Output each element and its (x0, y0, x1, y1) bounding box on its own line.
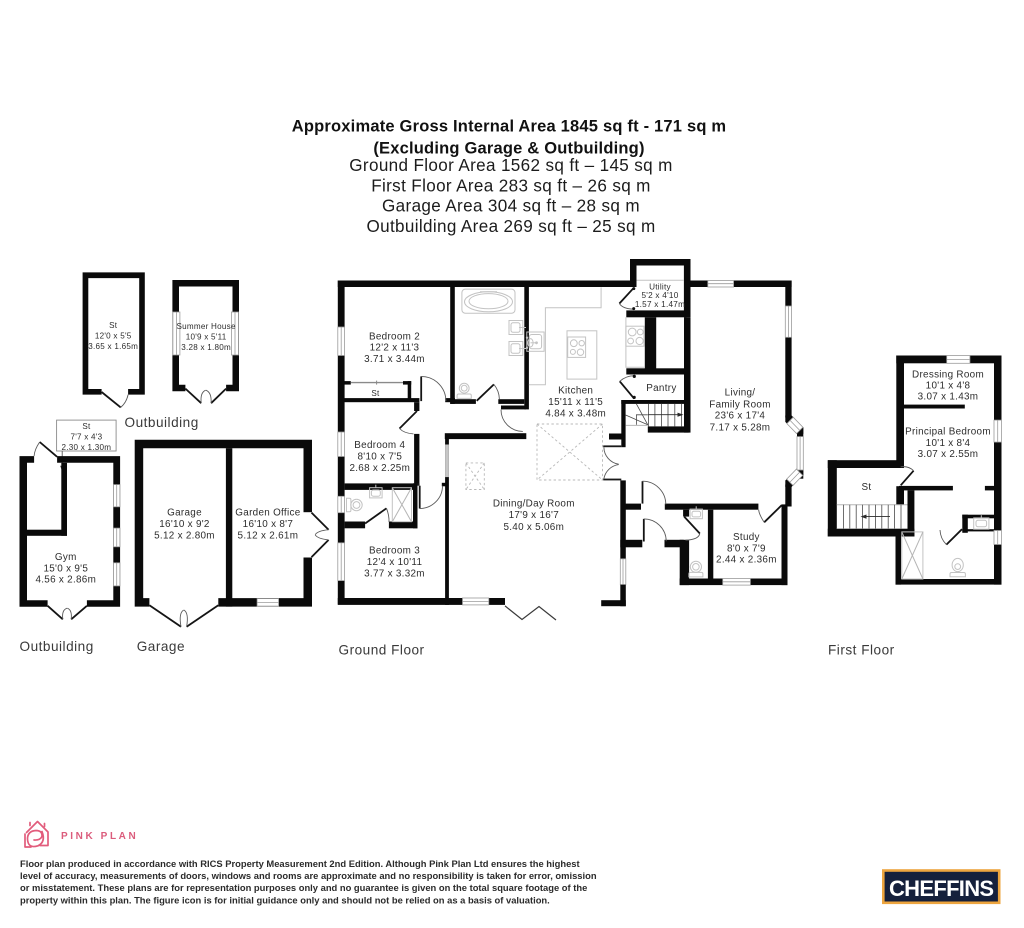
svg-text:8'10 x 7'5: 8'10 x 7'5 (357, 452, 402, 463)
svg-text:16'10 x 8'7: 16'10 x 8'7 (243, 519, 293, 530)
svg-text:10'1 x 8'4: 10'1 x 8'4 (926, 438, 971, 449)
svg-text:Ground Floor: Ground Floor (339, 643, 425, 658)
svg-text:Summer House: Summer House (176, 322, 235, 331)
svg-text:First Floor Area 283 sq ft – 2: First Floor Area 283 sq ft – 26 sq m (371, 177, 651, 196)
svg-text:CHEFFINS: CHEFFINS (889, 876, 993, 901)
svg-text:Bedroom 3: Bedroom 3 (369, 546, 420, 557)
svg-text:Outbuilding Area 269 sq ft – 2: Outbuilding Area 269 sq ft – 25 sq m (366, 217, 655, 236)
svg-text:Study: Study (733, 532, 760, 543)
svg-text:St: St (109, 321, 118, 330)
svg-text:Living/: Living/ (725, 388, 756, 399)
svg-text:5.40 x 5.06m: 5.40 x 5.06m (503, 522, 564, 533)
svg-text:Principal Bedroom: Principal Bedroom (905, 427, 991, 438)
svg-text:Bedroom 4: Bedroom 4 (354, 440, 405, 451)
svg-text:property within this plan. The: property within this plan. The figure ic… (20, 894, 550, 905)
svg-text:4.84 x 3.48m: 4.84 x 3.48m (545, 408, 606, 419)
svg-text:PINK PLAN: PINK PLAN (61, 831, 138, 842)
svg-text:Ground Floor Area 1562 sq ft –: Ground Floor Area 1562 sq ft – 145 sq m (349, 156, 672, 175)
svg-text:3.77 x 3.32m: 3.77 x 3.32m (364, 568, 425, 579)
svg-text:3.65 x 1.65m: 3.65 x 1.65m (88, 342, 138, 351)
svg-text:23'6 x 17'4: 23'6 x 17'4 (715, 411, 766, 422)
svg-text:Garden Office: Garden Office (235, 508, 300, 519)
svg-text:Gym: Gym (55, 552, 77, 563)
svg-text:Pantry: Pantry (646, 383, 676, 394)
svg-text:5.12 x 2.61m: 5.12 x 2.61m (238, 531, 299, 542)
svg-text:10'1 x 4'8: 10'1 x 4'8 (926, 380, 971, 391)
svg-text:3.71 x 3.44m: 3.71 x 3.44m (364, 354, 425, 365)
svg-text:12'0 x 5'5: 12'0 x 5'5 (95, 331, 132, 340)
svg-text:7.17 x 5.28m: 7.17 x 5.28m (710, 422, 771, 433)
svg-text:12'2 x 11'3: 12'2 x 11'3 (370, 343, 420, 354)
svg-text:16'10 x 9'2: 16'10 x 9'2 (159, 519, 209, 530)
svg-text:Garage Area 304 sq ft – 28 sq: Garage Area 304 sq ft – 28 sq m (382, 197, 640, 216)
svg-text:First Floor: First Floor (828, 643, 895, 658)
svg-text:(Excluding Garage & Outbuildin: (Excluding Garage & Outbuilding) (373, 139, 644, 157)
svg-text:10'9 x 5'11: 10'9 x 5'11 (186, 332, 227, 341)
svg-text:Kitchen: Kitchen (558, 386, 593, 397)
svg-text:Outbuilding: Outbuilding (125, 415, 199, 430)
svg-text:Outbuilding: Outbuilding (20, 639, 94, 654)
svg-text:15'11 x 11'5: 15'11 x 11'5 (548, 397, 603, 408)
svg-text:Dressing Room: Dressing Room (912, 369, 984, 380)
svg-text:12'4 x 10'11: 12'4 x 10'11 (367, 557, 423, 568)
svg-text:3.07 x 1.43m: 3.07 x 1.43m (918, 392, 979, 403)
svg-text:or misstatement. These plans a: or misstatement. These plans are for rep… (20, 882, 587, 893)
svg-text:Floor plan produced in accorda: Floor plan produced in accordance with R… (20, 858, 580, 869)
svg-text:Dining/Day Room: Dining/Day Room (493, 498, 575, 509)
svg-text:St: St (371, 389, 380, 398)
svg-text:2.68 x 2.25m: 2.68 x 2.25m (349, 463, 410, 474)
svg-text:Garage: Garage (167, 508, 202, 519)
svg-text:7'7 x 4'3: 7'7 x 4'3 (70, 432, 102, 441)
svg-text:Approximate Gross Internal Are: Approximate Gross Internal Area 1845 sq … (292, 118, 727, 136)
svg-text:Utility: Utility (649, 283, 671, 292)
svg-text:1.57 x 1.47m: 1.57 x 1.47m (635, 300, 685, 309)
svg-text:3.07 x 2.55m: 3.07 x 2.55m (918, 449, 979, 460)
svg-text:St: St (82, 422, 91, 431)
svg-text:3.28 x 1.80m: 3.28 x 1.80m (181, 343, 231, 352)
svg-text:15'0 x 9'5: 15'0 x 9'5 (43, 563, 88, 574)
svg-text:Garage: Garage (137, 639, 185, 654)
svg-text:St: St (862, 482, 872, 493)
svg-text:5'2 x 4'10: 5'2 x 4'10 (641, 291, 678, 300)
svg-text:2.30 x 1.30m: 2.30 x 1.30m (62, 443, 112, 452)
svg-text:5.12 x 2.80m: 5.12 x 2.80m (154, 531, 215, 542)
svg-text:2.44 x 2.36m: 2.44 x 2.36m (716, 554, 777, 565)
svg-text:Family Room: Family Room (709, 400, 770, 411)
svg-text:17'9 x 16'7: 17'9 x 16'7 (509, 510, 559, 521)
svg-text:8'0 x 7'9: 8'0 x 7'9 (727, 544, 766, 555)
svg-text:Bedroom 2: Bedroom 2 (369, 331, 420, 342)
svg-text:4.56 x 2.86m: 4.56 x 2.86m (35, 575, 96, 586)
svg-text:level of accuracy, measurement: level of accuracy, measurements of doors… (20, 870, 597, 881)
